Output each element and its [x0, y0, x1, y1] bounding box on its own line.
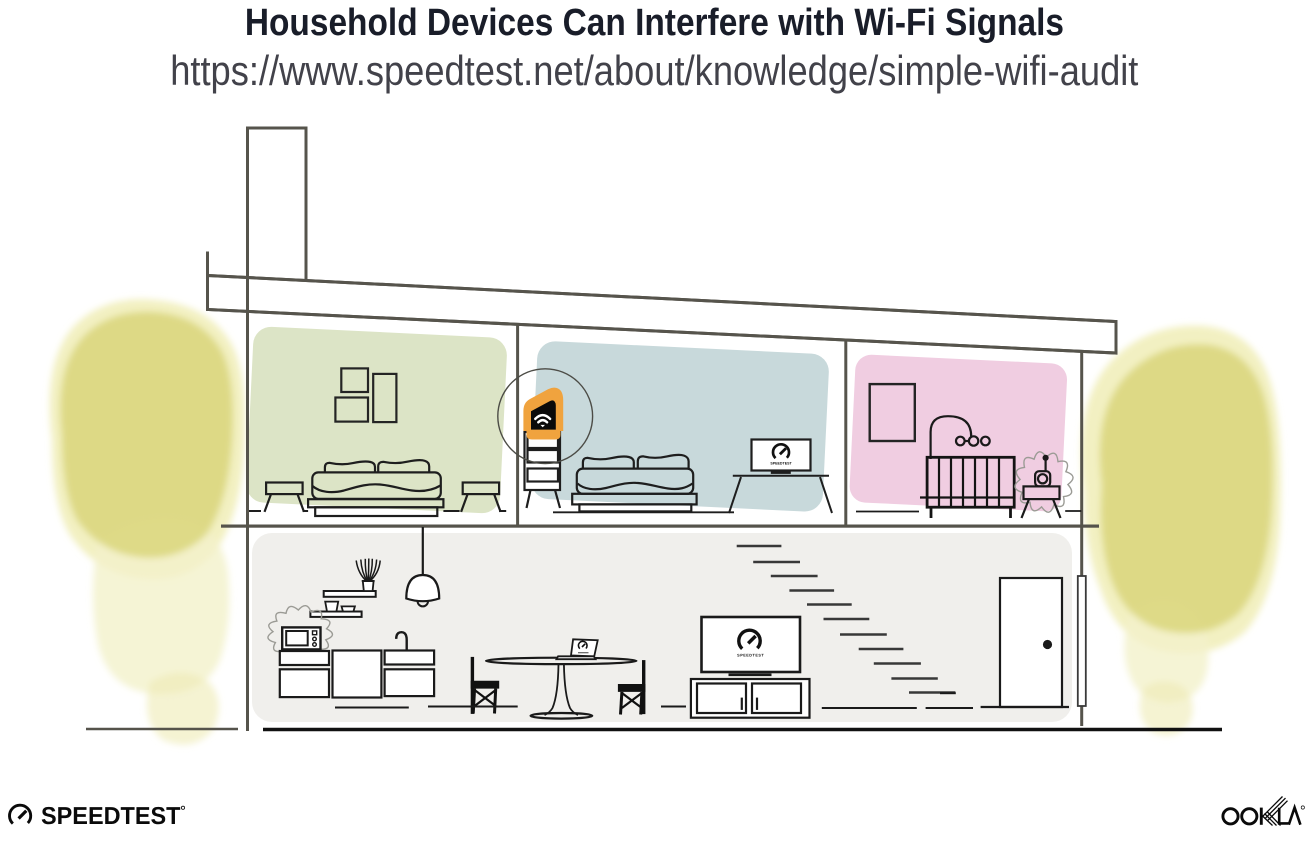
- svg-text:SPEEDTEST: SPEEDTEST: [770, 462, 792, 466]
- svg-text:SPEEDTEST: SPEEDTEST: [41, 803, 181, 830]
- svg-text:SPEEDTEST: SPEEDTEST: [737, 654, 764, 658]
